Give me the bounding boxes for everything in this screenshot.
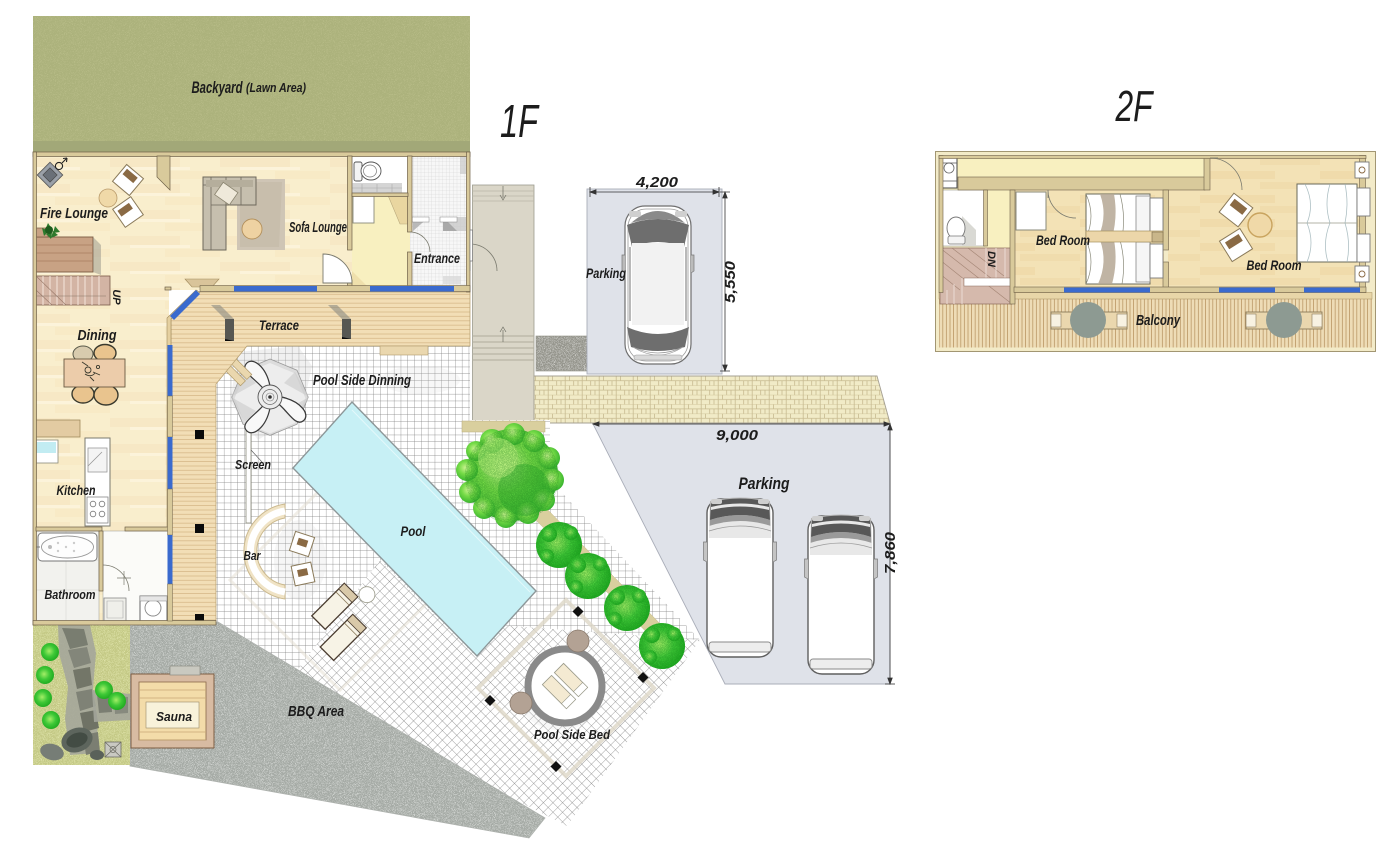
svg-text:Sofa Lounge: Sofa Lounge	[289, 220, 347, 236]
svg-text:Bed Room: Bed Room	[1247, 257, 1302, 273]
svg-text:Pool: Pool	[401, 524, 426, 539]
svg-text:(Lawn Area): (Lawn Area)	[246, 81, 306, 95]
svg-text:Dining: Dining	[78, 328, 117, 344]
svg-text:UP: UP	[110, 289, 122, 305]
svg-text:7,860: 7,860	[882, 531, 899, 574]
svg-text:Bathroom: Bathroom	[45, 587, 96, 602]
svg-text:Pool Side Dinning: Pool Side Dinning	[313, 373, 411, 389]
svg-text:Sauna: Sauna	[156, 709, 192, 724]
svg-text:Kitchen: Kitchen	[57, 483, 96, 498]
svg-text:Balcony: Balcony	[1136, 313, 1181, 329]
svg-text:Bar: Bar	[244, 549, 262, 563]
svg-text:Terrace: Terrace	[259, 318, 299, 333]
svg-text:2F: 2F	[1115, 82, 1154, 131]
svg-text:Entrance: Entrance	[414, 251, 460, 266]
svg-text:5,550: 5,550	[722, 260, 739, 303]
svg-text:Parking: Parking	[586, 265, 626, 281]
svg-text:Pool Side Bed: Pool Side Bed	[534, 728, 610, 742]
svg-text:Screen: Screen	[235, 457, 271, 472]
svg-text:DN: DN	[985, 251, 997, 268]
svg-text:1F: 1F	[500, 95, 540, 147]
svg-text:Backyard: Backyard	[192, 78, 243, 97]
svg-text:9,000: 9,000	[716, 427, 759, 444]
svg-text:Fire Lounge: Fire Lounge	[40, 206, 108, 222]
svg-text:Bed Room: Bed Room	[1036, 232, 1090, 248]
svg-text:BBQ Area: BBQ Area	[288, 704, 344, 720]
svg-text:4,200: 4,200	[635, 174, 679, 191]
svg-text:Parking: Parking	[739, 474, 791, 493]
